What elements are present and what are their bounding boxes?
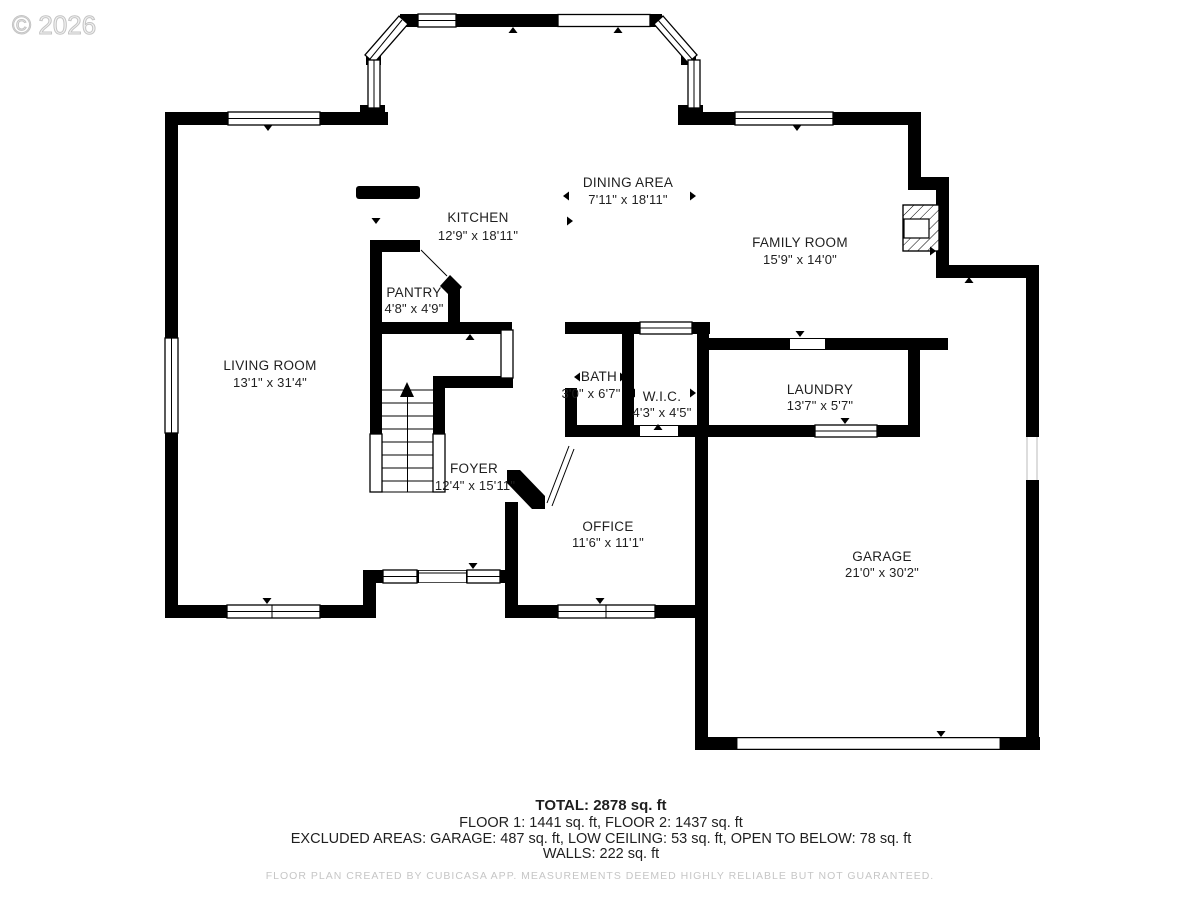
room-name-wic: W.I.C. — [643, 389, 682, 404]
room-name-foyer: FOYER — [450, 461, 498, 476]
room-label-wic: W.I.C. 4'3" x 4'5" — [632, 389, 691, 420]
room-name-family-room: FAMILY ROOM — [752, 235, 848, 250]
room-dims-foyer: 12'4" x 15'11" — [435, 478, 516, 493]
room-label-foyer: FOYER 12'4" x 15'11" — [435, 461, 516, 493]
room-dims-living-room: 13'1" x 31'4" — [233, 375, 307, 390]
room-dims-wic: 4'3" x 4'5" — [632, 405, 691, 420]
room-name-living-room: LIVING ROOM — [223, 358, 316, 373]
summary-walls: WALLS: 222 sq. ft — [543, 846, 659, 862]
room-dims-laundry: 13'7" x 5'7" — [787, 398, 854, 413]
room-dims-pantry: 4'8" x 4'9" — [384, 301, 443, 316]
room-name-dining-area: DINING AREA — [583, 175, 673, 190]
footer-disclaimer: FLOOR PLAN CREATED BY CUBICASA APP. MEAS… — [266, 870, 934, 882]
copyright-watermark: © 2026 — [12, 10, 96, 40]
room-dims-bath: 3'0" x 6'7" — [561, 386, 620, 401]
room-labels-layer: DINING AREA 7'11" x 18'11" KITCHEN 12'9"… — [223, 175, 919, 580]
floor-plan-canvas: © 2026 — [0, 0, 1200, 900]
room-label-family-room: FAMILY ROOM 15'9" x 14'0" — [752, 235, 848, 267]
fireplace-icon — [903, 205, 939, 251]
room-name-laundry: LAUNDRY — [787, 382, 853, 397]
room-name-kitchen: KITCHEN — [447, 210, 508, 225]
floor-plan-page: © 2026 — [0, 0, 1200, 900]
room-label-pantry: PANTRY 4'8" x 4'9" — [384, 285, 443, 316]
room-label-dining-area: DINING AREA 7'11" x 18'11" — [583, 175, 673, 207]
room-label-kitchen: KITCHEN 12'9" x 18'11" — [438, 210, 519, 243]
room-name-bath: BATH — [581, 369, 617, 384]
room-dims-kitchen: 12'9" x 18'11" — [438, 228, 519, 243]
room-label-laundry: LAUNDRY 13'7" x 5'7" — [787, 382, 854, 413]
room-dims-garage: 21'0" x 30'2" — [845, 565, 919, 580]
room-label-office: OFFICE 11'6" x 11'1" — [572, 519, 644, 550]
summary-total: TOTAL: 2878 sq. ft — [535, 797, 666, 814]
room-dims-family-room: 15'9" x 14'0" — [763, 252, 837, 267]
room-dims-dining-area: 7'11" x 18'11" — [588, 192, 668, 207]
room-name-office: OFFICE — [582, 519, 633, 534]
room-label-garage: GARAGE 21'0" x 30'2" — [845, 549, 919, 580]
room-name-garage: GARAGE — [852, 549, 912, 564]
room-label-living-room: LIVING ROOM 13'1" x 31'4" — [223, 358, 316, 390]
area-summary-block: TOTAL: 2878 sq. ft FLOOR 1: 1441 sq. ft,… — [291, 797, 912, 862]
staircase — [382, 382, 433, 492]
room-label-bath: BATH 3'0" x 6'7" — [561, 369, 620, 401]
room-dims-office: 11'6" x 11'1" — [572, 535, 644, 550]
opening-arrows-layer — [263, 27, 974, 737]
room-name-pantry: PANTRY — [386, 285, 441, 300]
summary-floors: FLOOR 1: 1441 sq. ft, FLOOR 2: 1437 sq. … — [459, 815, 743, 831]
summary-excluded-areas: EXCLUDED AREAS: GARAGE: 487 sq. ft, LOW … — [291, 831, 912, 847]
